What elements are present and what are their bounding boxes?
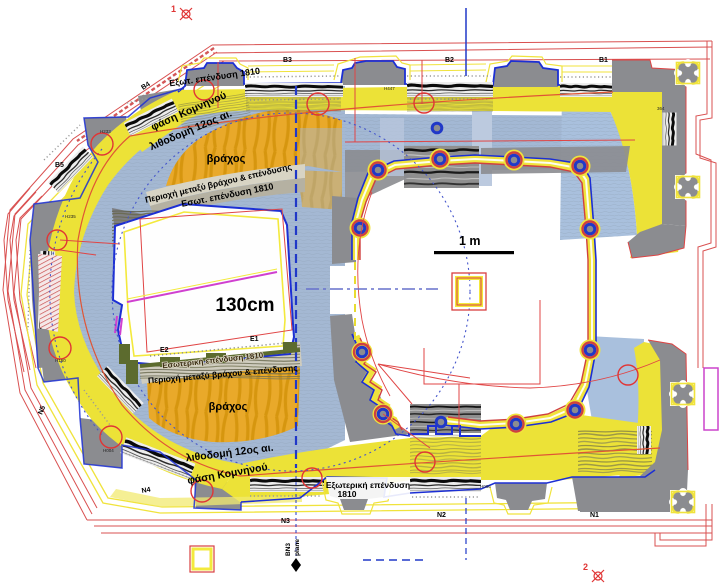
svg-text:H004: H004 — [103, 448, 114, 453]
svg-text:βράχος: βράχος — [207, 153, 246, 165]
svg-text:H447: H447 — [384, 86, 395, 91]
svg-text:E1: E1 — [250, 336, 259, 343]
svg-text:H160: H160 — [55, 358, 66, 363]
svg-text:H235: H235 — [65, 214, 76, 219]
svg-text:2: 2 — [583, 562, 588, 572]
svg-text:E2: E2 — [160, 347, 169, 354]
svg-text:1 m: 1 m — [459, 234, 481, 248]
svg-text:N2: N2 — [437, 512, 446, 519]
svg-text:B3: B3 — [283, 57, 292, 64]
svg-text:H233: H233 — [100, 129, 111, 134]
svg-text:βράχος: βράχος — [209, 401, 248, 413]
svg-text:130cm: 130cm — [215, 295, 274, 316]
svg-text:1810: 1810 — [338, 489, 357, 499]
svg-text:N3: N3 — [281, 518, 290, 525]
svg-text:B2: B2 — [445, 57, 454, 64]
svg-text:BN3: BN3 — [285, 543, 292, 556]
svg-text:364: 364 — [657, 106, 665, 111]
svg-text:plane: plane — [294, 539, 301, 556]
svg-text:N1: N1 — [590, 512, 599, 519]
svg-text:H066: H066 — [480, 484, 491, 489]
svg-text:B5: B5 — [55, 162, 64, 169]
svg-text:1: 1 — [171, 4, 176, 14]
svg-text:B1: B1 — [599, 57, 608, 64]
